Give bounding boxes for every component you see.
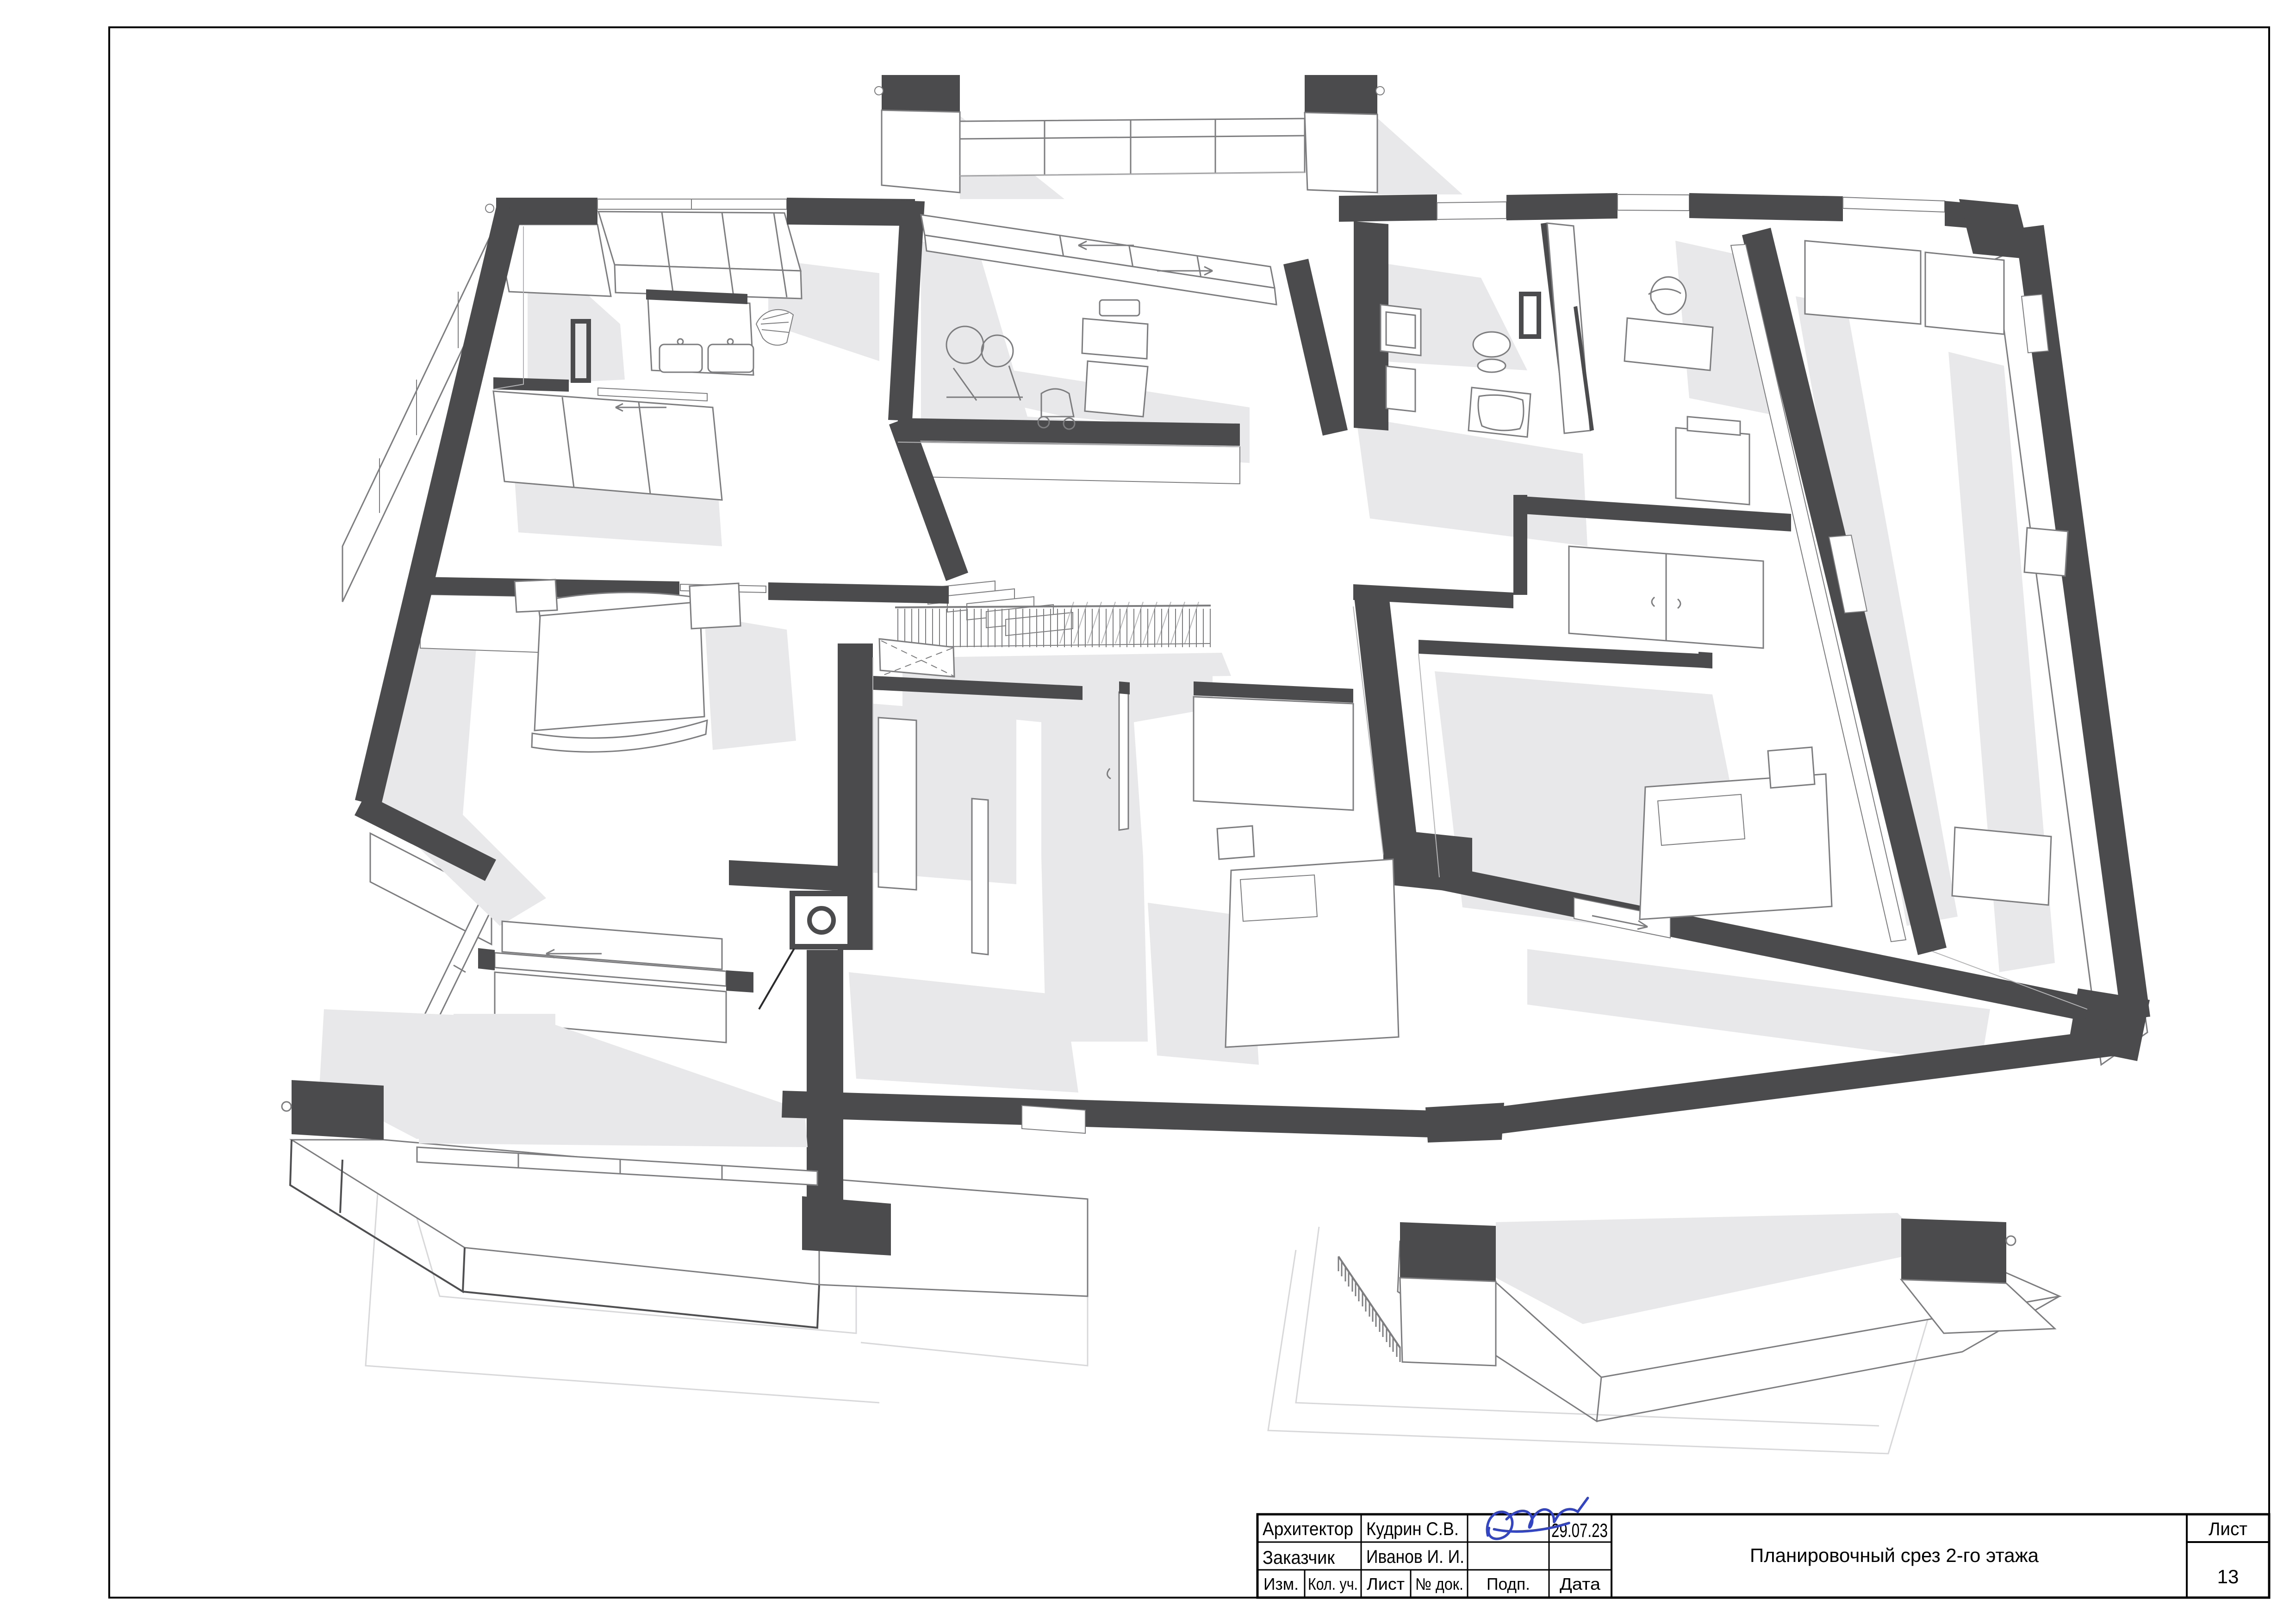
svg-text:Заказчик: Заказчик <box>1263 1548 1335 1568</box>
svg-text:Изм.: Изм. <box>1263 1574 1299 1593</box>
svg-text:Подп.: Подп. <box>1487 1574 1530 1593</box>
svg-text:Лист: Лист <box>1367 1574 1405 1593</box>
svg-text:Архитектор: Архитектор <box>1263 1519 1353 1539</box>
svg-text:13: 13 <box>2217 1566 2239 1587</box>
svg-text:Кудрин С.В.: Кудрин С.В. <box>1366 1519 1459 1539</box>
svg-text:Дата: Дата <box>1560 1574 1601 1593</box>
svg-text:Лист: Лист <box>2209 1519 2247 1539</box>
svg-text:Кол. уч.: Кол. уч. <box>1308 1574 1358 1593</box>
svg-text:Планировочный срез 2-го этажа: Планировочный срез 2-го этажа <box>1750 1544 2039 1566</box>
svg-text:29.07.23: 29.07.23 <box>1551 1519 1608 1541</box>
svg-text:№ док.: № док. <box>1415 1574 1463 1593</box>
svg-text:Иванов И. И.: Иванов И. И. <box>1366 1547 1464 1567</box>
